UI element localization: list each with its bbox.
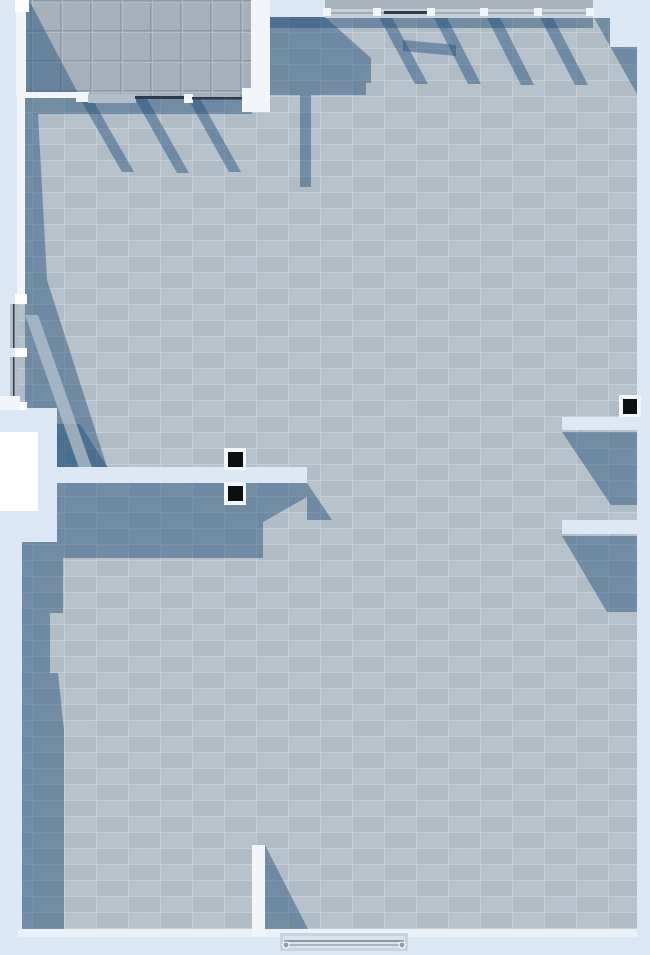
north-post-icon (586, 8, 594, 16)
north-post-icon (323, 8, 331, 16)
south-entry-door (280, 933, 408, 951)
west-wall-lower-line (17, 542, 22, 930)
room-corner-block (15, 0, 29, 12)
south-door-handle-icon (283, 942, 289, 948)
column-cap-east (623, 399, 637, 414)
margin-east (637, 0, 650, 955)
east-wall-lower (562, 520, 638, 534)
room-south-wall (20, 92, 78, 98)
vestibule-wall-piece (0, 396, 20, 410)
north-post-icon (480, 8, 488, 16)
north-post-icon (534, 8, 542, 16)
east-wall-upper (562, 417, 638, 430)
south-door-handle-icon (399, 942, 405, 948)
north-wall (323, 0, 594, 18)
vestibule-bright-opening (0, 432, 38, 511)
room-door-post-b (184, 94, 193, 103)
west-door-line-1 (13, 304, 15, 348)
room-west-wall (16, 0, 26, 97)
room-glass-wall-2 (192, 97, 243, 100)
room-sliding-door-panel (88, 94, 136, 103)
floorplan-viewport[interactable] (0, 0, 650, 955)
north-wall-glass-dark (384, 11, 429, 14)
north-wall-glass-rail (330, 12, 588, 14)
north-post-icon (373, 8, 381, 16)
west-door-post-top (15, 294, 27, 304)
south-wall-stub (252, 845, 265, 936)
margin-north-notch (266, 0, 325, 17)
room-east-wall (251, 0, 270, 97)
south-door-rail-2 (284, 944, 404, 946)
north-wall-top (325, 0, 593, 10)
center-wall (40, 467, 307, 483)
column-cap-lower (228, 486, 243, 501)
south-door-rail-1 (284, 940, 404, 942)
room-southeast-block (242, 88, 270, 112)
west-door-post-mid (15, 348, 27, 357)
render-canvas (0, 0, 650, 955)
west-wall-strip (17, 97, 25, 296)
north-post-icon (427, 8, 435, 16)
room-door-post-a (76, 92, 89, 102)
column-cap-upper (228, 452, 243, 467)
room-glass-wall-1 (135, 96, 187, 99)
